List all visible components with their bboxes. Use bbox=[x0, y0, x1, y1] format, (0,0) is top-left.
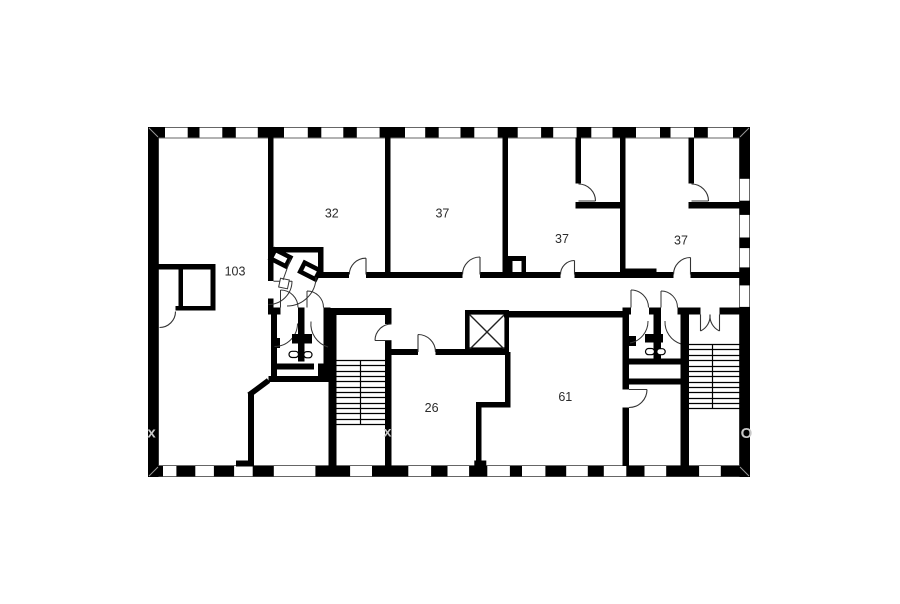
svg-text:O: O bbox=[741, 425, 753, 442]
svg-text:x: x bbox=[384, 424, 392, 440]
svg-text:32: 32 bbox=[325, 207, 339, 221]
svg-text:x: x bbox=[147, 425, 156, 442]
svg-text:37: 37 bbox=[674, 234, 688, 248]
svg-text:61: 61 bbox=[558, 390, 572, 404]
svg-text:37: 37 bbox=[555, 232, 569, 246]
svg-text:103: 103 bbox=[225, 265, 246, 279]
svg-text:37: 37 bbox=[435, 207, 449, 221]
svg-text:26: 26 bbox=[425, 401, 439, 415]
